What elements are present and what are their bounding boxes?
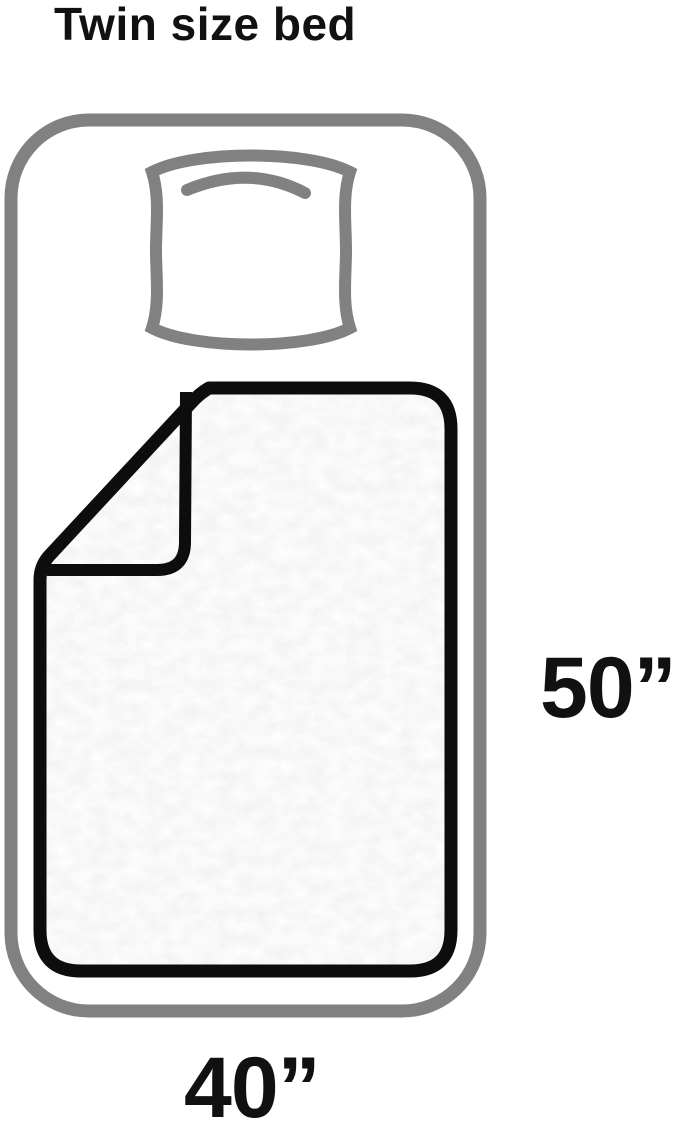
product-dimension-diagram: Twin size bed 50” 40” [0, 0, 679, 1128]
bed-diagram [0, 0, 679, 1128]
height-dimension-label: 50” [540, 642, 676, 734]
width-dimension-label: 40” [184, 1042, 320, 1128]
